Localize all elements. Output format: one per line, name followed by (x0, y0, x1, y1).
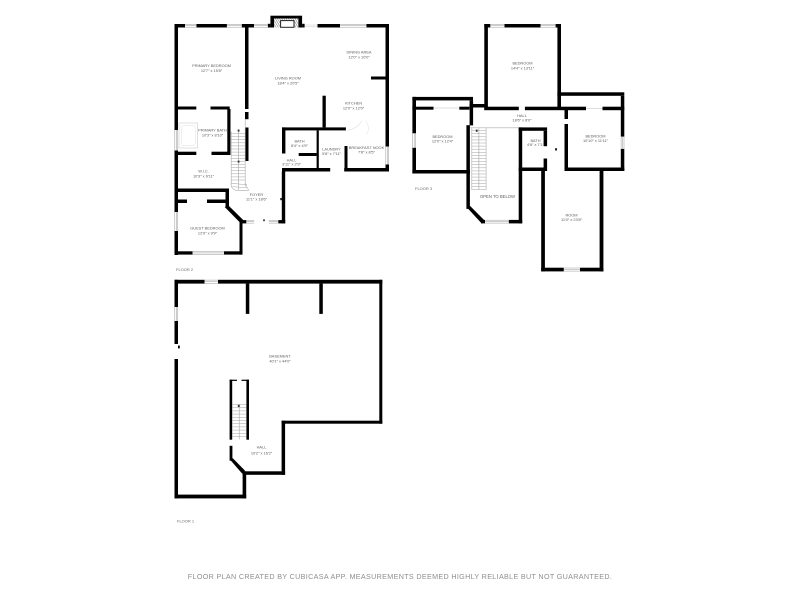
svg-text:18′6″ x 8′0″: 18′6″ x 8′0″ (512, 117, 532, 122)
svg-text:FLOOR PLAN CREATED BY CUBICASA: FLOOR PLAN CREATED BY CUBICASA APP. MEAS… (188, 572, 612, 581)
svg-text:10′2″ x 16′2″: 10′2″ x 16′2″ (251, 451, 273, 456)
svg-text:7′8″ x 8′5″: 7′8″ x 8′5″ (358, 149, 376, 154)
svg-text:12′9″ x 9′9″: 12′9″ x 9′9″ (198, 230, 218, 235)
svg-text:40′1″ x 44′0″: 40′1″ x 44′0″ (269, 359, 291, 364)
svg-text:14′4″ x 13′11″: 14′4″ x 13′11″ (511, 65, 535, 70)
svg-text:FLOOR 3: FLOOR 3 (415, 186, 433, 191)
svg-text:12′0″ x 12′0″: 12′0″ x 12′0″ (343, 105, 365, 110)
svg-text:8′4″ x 4′9″: 8′4″ x 4′9″ (291, 143, 309, 148)
svg-text:FLOOR 2: FLOOR 2 (176, 267, 194, 272)
svg-text:11′0″ x 23′8″: 11′0″ x 23′8″ (561, 217, 583, 222)
svg-text:FLOOR 1: FLOOR 1 (177, 519, 195, 524)
svg-text:4′6″ x 7′1″: 4′6″ x 7′1″ (527, 142, 545, 147)
svg-text:10′10″ x 11′11″: 10′10″ x 11′11″ (583, 138, 609, 143)
svg-text:18′4″ x 20′5″: 18′4″ x 20′5″ (277, 81, 299, 86)
svg-text:12′0″ x 12′4″: 12′0″ x 12′4″ (432, 139, 454, 144)
svg-text:5′8″ x 7′11″: 5′8″ x 7′11″ (322, 151, 341, 156)
svg-text:11′1″ x 18′6″: 11′1″ x 18′6″ (246, 197, 268, 202)
svg-text:OPEN TO BELOW: OPEN TO BELOW (480, 194, 515, 199)
svg-text:12′7″ x 15′8″: 12′7″ x 15′8″ (201, 68, 223, 73)
svg-text:HALL: HALL (257, 444, 268, 449)
svg-text:10′3″ x 6′11″: 10′3″ x 6′11″ (193, 174, 215, 179)
svg-text:3′11″ x 2′9″: 3′11″ x 2′9″ (282, 162, 301, 167)
svg-text:12′0″ x 10′0″: 12′0″ x 10′0″ (348, 55, 370, 60)
svg-text:10′3″ x 8′10″: 10′3″ x 8′10″ (202, 132, 224, 137)
